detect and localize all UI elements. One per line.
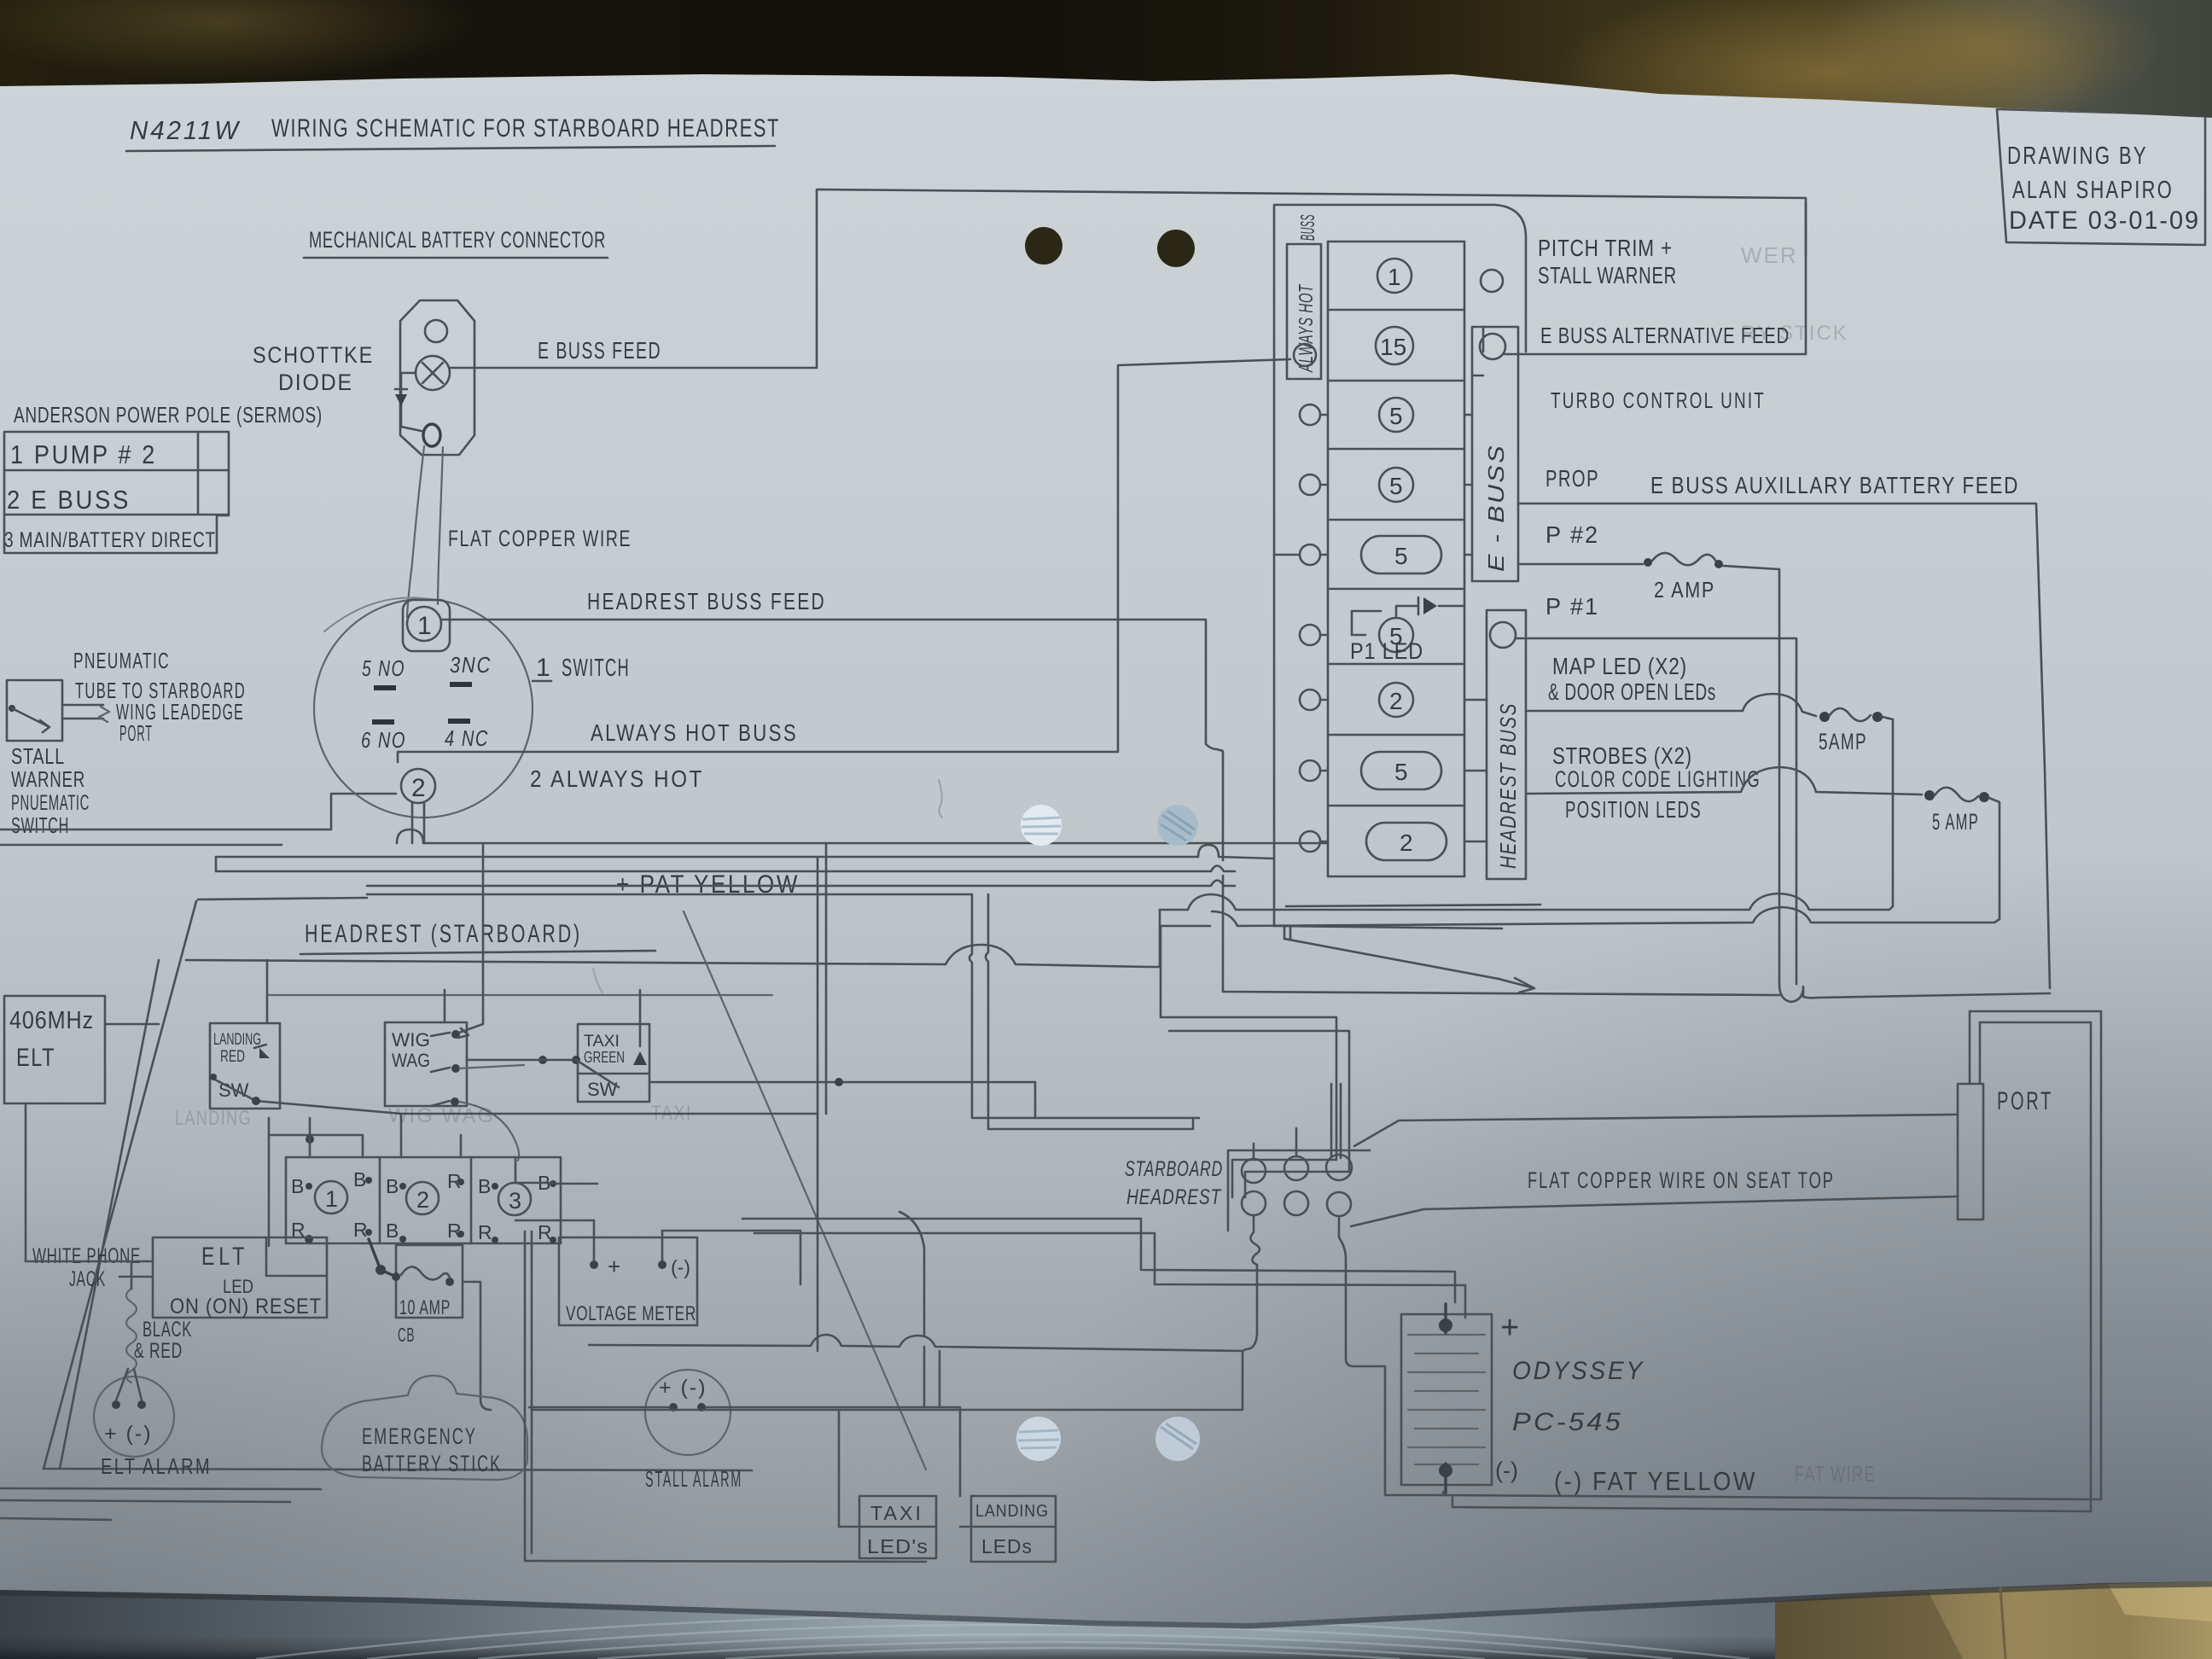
svg-text:10 AMP: 10 AMP: [399, 1296, 451, 1319]
svg-text:ANDERSON POWER POLE (SERMOS): ANDERSON POWER POLE (SERMOS): [14, 402, 323, 428]
svg-text:JACK: JACK: [69, 1267, 106, 1291]
svg-text:1: 1: [1388, 264, 1401, 290]
svg-text:15: 15: [1380, 334, 1406, 360]
svg-text:GREEN: GREEN: [584, 1049, 625, 1066]
svg-text:5 NO: 5 NO: [362, 655, 405, 681]
svg-text:PORT: PORT: [119, 720, 153, 746]
svg-text:FLAT COPPER WIRE ON SEAT TOP: FLAT COPPER WIRE ON SEAT TOP: [1528, 1167, 1835, 1193]
svg-text:ALWAYS HOT BUSS: ALWAYS HOT BUSS: [591, 719, 798, 746]
svg-text:2: 2: [1389, 688, 1403, 714]
svg-text:B: B: [353, 1168, 366, 1190]
svg-text:(-): (-): [1495, 1458, 1518, 1483]
svg-text:1 PUMP # 2: 1 PUMP # 2: [10, 439, 157, 469]
svg-text:ODYSSEY: ODYSSEY: [1512, 1357, 1644, 1385]
svg-text:VOLTAGE METER: VOLTAGE METER: [566, 1302, 696, 1325]
svg-text:EMERGENCY: EMERGENCY: [362, 1423, 477, 1449]
svg-text:ELT: ELT: [16, 1044, 55, 1072]
svg-text:5: 5: [1394, 759, 1408, 785]
svg-text:(-): (-): [671, 1256, 690, 1278]
svg-text:PC-545: PC-545: [1512, 1408, 1623, 1436]
svg-text:R: R: [478, 1221, 492, 1243]
svg-text:E BUSS FEED: E BUSS FEED: [538, 337, 661, 364]
svg-text:6 NO: 6 NO: [361, 727, 406, 753]
svg-text:DIODE: DIODE: [278, 370, 353, 395]
svg-text:SCHOTTKE: SCHOTTKE: [253, 342, 374, 368]
svg-text:WARNER: WARNER: [11, 766, 85, 792]
svg-text:WIG: WIG: [392, 1029, 430, 1051]
svg-text:ELT: ELT: [201, 1243, 248, 1271]
svg-text:E BUSS AUXILLARY BATTERY FEED: E BUSS AUXILLARY BATTERY FEED: [1650, 472, 2019, 498]
svg-text:PITCH TRIM +: PITCH TRIM +: [1538, 235, 1673, 261]
svg-text:TAXI: TAXI: [584, 1033, 620, 1051]
svg-text:HEADREST (STARBOARD): HEADREST (STARBOARD): [305, 920, 582, 948]
svg-text:LED's: LED's: [867, 1535, 928, 1557]
svg-text:+: +: [608, 1254, 620, 1279]
svg-text:DATE 03-01-09: DATE 03-01-09: [2009, 207, 2200, 235]
svg-text:LEDs: LEDs: [981, 1535, 1033, 1557]
svg-text:N4211W: N4211W: [130, 115, 241, 145]
svg-text:5AMP: 5AMP: [1819, 729, 1867, 754]
svg-text:WIRING SCHEMATIC FOR STARBOARD: WIRING SCHEMATIC FOR STARBOARD HEADREST: [271, 114, 780, 143]
svg-text:BUSS: BUSS: [1296, 214, 1318, 241]
svg-text:P #2: P #2: [1545, 521, 1599, 548]
svg-text:MECHANICAL BATTERY CONNECTOR: MECHANICAL BATTERY CONNECTOR: [309, 227, 606, 253]
svg-text:406MHz: 406MHz: [9, 1007, 94, 1034]
svg-text:LANDING: LANDING: [213, 1031, 261, 1049]
svg-text:2 ALWAYS HOT: 2 ALWAYS HOT: [530, 765, 704, 792]
svg-text:& DOOR OPEN LEDs: & DOOR OPEN LEDs: [1548, 678, 1716, 705]
svg-text:STROBES (X2): STROBES (X2): [1552, 742, 1692, 769]
svg-text:FLAT COPPER WIRE: FLAT COPPER WIRE: [448, 526, 632, 551]
svg-text:3NC: 3NC: [450, 652, 492, 678]
svg-text:LANDING: LANDING: [175, 1107, 252, 1130]
svg-text:PORT: PORT: [1997, 1087, 2053, 1115]
svg-text:P1 LED: P1 LED: [1350, 638, 1423, 664]
svg-text:1: 1: [536, 654, 551, 682]
svg-text:RED: RED: [220, 1048, 245, 1066]
svg-text:3: 3: [509, 1188, 521, 1214]
svg-text:ALWAYS HOT: ALWAYS HOT: [1295, 283, 1317, 373]
svg-text:PNUEMATIC: PNUEMATIC: [11, 791, 90, 815]
svg-text:STALL ALARM: STALL ALARM: [645, 1466, 742, 1492]
svg-text:B: B: [291, 1175, 304, 1197]
svg-text:1: 1: [325, 1186, 338, 1212]
svg-text:2 E BUSS: 2 E BUSS: [7, 485, 131, 515]
svg-text:STALL WARNER: STALL WARNER: [1538, 262, 1677, 288]
svg-text:2: 2: [1400, 829, 1413, 856]
svg-text:BLACK: BLACK: [143, 1318, 192, 1342]
svg-text:SW: SW: [587, 1079, 618, 1100]
svg-text:RY STICK: RY STICK: [1741, 322, 1848, 345]
svg-text:PROP: PROP: [1545, 465, 1599, 492]
svg-text:B: B: [386, 1220, 399, 1242]
svg-text:POSITION LEDS: POSITION LEDS: [1565, 796, 1702, 823]
svg-text:ON (ON) RESET: ON (ON) RESET: [170, 1295, 322, 1318]
svg-text:2: 2: [411, 774, 426, 802]
svg-text:CB: CB: [398, 1324, 415, 1346]
svg-text:LANDING: LANDING: [975, 1502, 1049, 1521]
svg-text:R: R: [447, 1220, 462, 1242]
svg-text:5: 5: [1389, 473, 1403, 499]
svg-text:TAXI: TAXI: [651, 1102, 692, 1125]
svg-text:WHITE PHONE: WHITE PHONE: [32, 1244, 141, 1268]
svg-text:COLOR CODE LIGHTING: COLOR CODE LIGHTING: [1555, 766, 1761, 792]
svg-text:SWITCH: SWITCH: [562, 655, 630, 682]
svg-text:+: +: [1500, 1310, 1519, 1346]
svg-text:SWITCH: SWITCH: [11, 812, 69, 838]
svg-text:TURBO CONTROL UNIT: TURBO CONTROL UNIT: [1551, 387, 1766, 413]
svg-text:ELT ALARM: ELT ALARM: [101, 1453, 212, 1479]
svg-text:BATTERY STICK: BATTERY STICK: [362, 1451, 502, 1476]
svg-text:5: 5: [1394, 543, 1408, 569]
svg-text:B: B: [478, 1175, 491, 1197]
svg-text:STARBOARD: STARBOARD: [1125, 1157, 1223, 1181]
svg-text:B: B: [386, 1175, 399, 1197]
svg-text:P #1: P #1: [1545, 593, 1599, 620]
svg-text:WIG WAG: WIG WAG: [388, 1104, 495, 1127]
svg-text:MAP LED (X2): MAP LED (X2): [1552, 653, 1687, 679]
svg-text:+ (-): + (-): [104, 1422, 153, 1446]
svg-text:PNEUMATIC: PNEUMATIC: [73, 648, 170, 673]
svg-text:4 NC: 4 NC: [445, 725, 489, 751]
svg-text:2: 2: [416, 1187, 429, 1213]
svg-text:5: 5: [1389, 403, 1403, 429]
svg-text:5 AMP: 5 AMP: [1932, 809, 1979, 835]
svg-text:DRAWING BY: DRAWING BY: [2007, 143, 2148, 170]
svg-text:+ (-): + (-): [659, 1376, 707, 1400]
svg-text:HEADREST BUSS: HEADREST BUSS: [1495, 702, 1521, 869]
svg-text:FAT WIRE: FAT WIRE: [1795, 1461, 1876, 1487]
svg-text:3 MAIN/BATTERY DIRECT: 3 MAIN/BATTERY DIRECT: [4, 528, 216, 552]
svg-text:1: 1: [417, 612, 432, 640]
svg-text:HEADREST BUSS FEED: HEADREST BUSS FEED: [587, 588, 826, 614]
svg-text:ALAN SHAPIRO: ALAN SHAPIRO: [2012, 177, 2174, 204]
svg-text:STALL: STALL: [11, 743, 65, 769]
svg-text:E - BUSS: E - BUSS: [1483, 444, 1509, 572]
svg-text:WER: WER: [1741, 242, 1798, 268]
svg-text:WAG: WAG: [392, 1050, 430, 1071]
svg-text:TAXI: TAXI: [870, 1502, 923, 1524]
svg-text:2 AMP: 2 AMP: [1654, 577, 1715, 602]
svg-text:HEADREST: HEADREST: [1126, 1185, 1222, 1209]
svg-text:(-) FAT YELLOW: (-) FAT YELLOW: [1554, 1466, 1757, 1496]
svg-text:& RED: & RED: [134, 1339, 183, 1363]
svg-text:R: R: [353, 1219, 368, 1241]
